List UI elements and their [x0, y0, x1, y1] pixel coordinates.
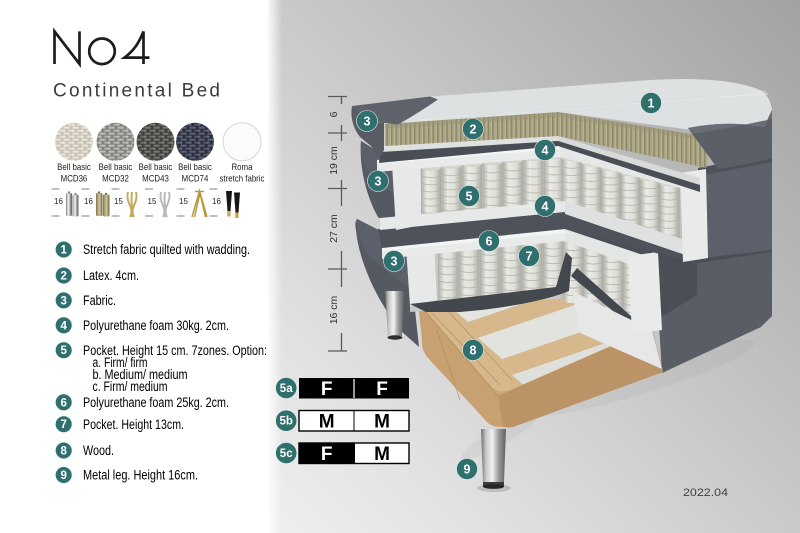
- svg-text:MCD36: MCD36: [61, 173, 88, 184]
- svg-text:Bell basic: Bell basic: [178, 161, 212, 172]
- svg-text:Stretch fabric quilted with wa: Stretch fabric quilted with wadding.: [83, 242, 250, 257]
- svg-text:3: 3: [391, 254, 398, 268]
- svg-text:MCD32: MCD32: [102, 173, 129, 184]
- svg-text:9: 9: [60, 470, 66, 482]
- svg-text:F: F: [376, 379, 388, 400]
- svg-text:Polyurethane foam 30kg. 2cm.: Polyurethane foam 30kg. 2cm.: [83, 318, 229, 333]
- svg-text:3: 3: [375, 174, 382, 188]
- svg-text:1: 1: [648, 96, 655, 110]
- svg-text:6: 6: [60, 397, 66, 409]
- svg-text:3: 3: [364, 114, 371, 128]
- svg-text:4: 4: [60, 320, 67, 332]
- svg-text:3: 3: [60, 295, 66, 307]
- svg-text:6: 6: [486, 234, 493, 248]
- svg-text:5b: 5b: [279, 416, 292, 428]
- svg-text:F: F: [321, 379, 333, 400]
- svg-text:16 cm: 16 cm: [328, 295, 340, 324]
- svg-text:Fabric.: Fabric.: [83, 293, 116, 308]
- svg-text:Latex. 4cm.: Latex. 4cm.: [83, 268, 139, 283]
- svg-text:5c: 5c: [280, 448, 293, 460]
- svg-text:Bell basic: Bell basic: [139, 161, 173, 172]
- svg-text:Roma: Roma: [232, 161, 253, 172]
- svg-text:6: 6: [328, 111, 340, 117]
- svg-text:7: 7: [526, 249, 533, 263]
- svg-text:16: 16: [54, 197, 63, 206]
- svg-text:5: 5: [60, 345, 67, 357]
- svg-text:4: 4: [542, 143, 549, 157]
- svg-text:7: 7: [60, 419, 66, 431]
- svg-text:stretch fabric: stretch fabric: [219, 173, 265, 184]
- svg-text:MCD74: MCD74: [182, 173, 209, 184]
- svg-text:M: M: [374, 444, 390, 465]
- svg-text:16: 16: [212, 197, 221, 206]
- svg-text:M: M: [374, 412, 390, 433]
- svg-text:5a: 5a: [280, 383, 293, 395]
- svg-text:Wood.: Wood.: [83, 443, 114, 458]
- svg-text:Metal leg. Height 16cm.: Metal leg. Height 16cm.: [83, 468, 198, 483]
- svg-text:9: 9: [464, 462, 471, 476]
- svg-text:15: 15: [114, 197, 123, 206]
- svg-text:2022.04: 2022.04: [683, 487, 728, 499]
- svg-text:Bell basic: Bell basic: [57, 161, 91, 172]
- svg-text:Polyurethane foam 25kg. 2cm.: Polyurethane foam 25kg. 2cm.: [83, 395, 229, 410]
- svg-text:2: 2: [60, 271, 66, 283]
- svg-text:16: 16: [84, 197, 93, 206]
- svg-text:8: 8: [470, 343, 477, 357]
- svg-text:M: M: [319, 412, 335, 433]
- svg-text:2: 2: [470, 122, 477, 136]
- svg-text:MCD43: MCD43: [142, 173, 169, 184]
- svg-text:c. Firm/ medium: c. Firm/ medium: [93, 379, 168, 394]
- svg-text:Pocket. Height 13cm.: Pocket. Height 13cm.: [83, 417, 184, 432]
- svg-text:4: 4: [542, 199, 549, 213]
- svg-text:Bell basic: Bell basic: [99, 161, 133, 172]
- svg-text:15: 15: [179, 197, 188, 206]
- svg-text:15: 15: [148, 197, 157, 206]
- svg-text:1: 1: [60, 245, 67, 257]
- svg-text:27 cm: 27 cm: [328, 214, 340, 243]
- svg-text:8: 8: [60, 446, 67, 458]
- svg-text:5: 5: [466, 189, 473, 203]
- svg-text:F: F: [321, 444, 333, 465]
- svg-text:19 cm: 19 cm: [328, 146, 340, 175]
